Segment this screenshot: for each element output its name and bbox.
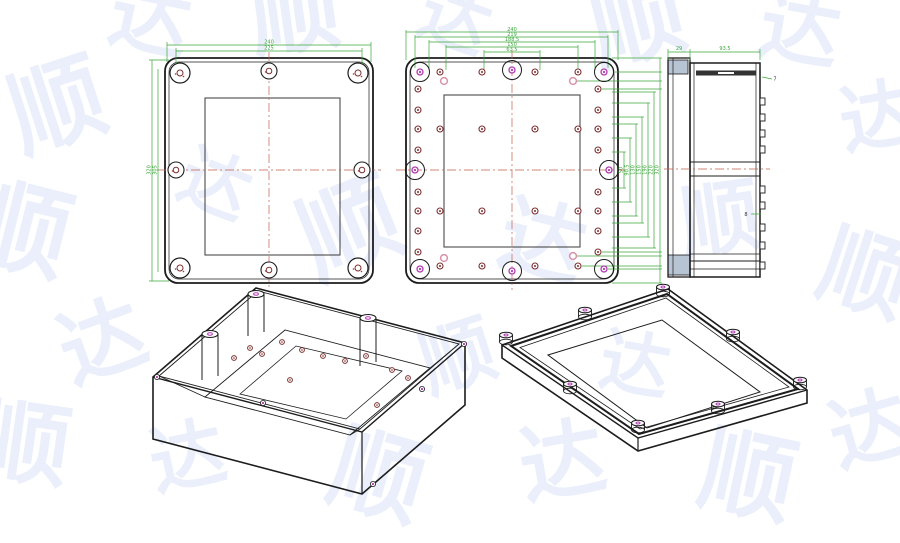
screw-hole-center — [577, 71, 579, 73]
pink-hole — [441, 255, 448, 262]
pink-hole — [570, 78, 577, 85]
lug-hole — [568, 383, 572, 385]
side-flange — [668, 58, 690, 277]
mark-dot — [172, 170, 173, 171]
mark-dot — [183, 271, 185, 273]
mark-dot — [353, 73, 355, 75]
lid-plate-gap — [718, 72, 734, 74]
iso-lid-near-edges — [502, 345, 807, 438]
floor-hole-center — [261, 353, 263, 355]
snap-clip — [760, 98, 765, 105]
iso-wall-edge — [430, 344, 459, 368]
screw-hole — [355, 70, 361, 76]
snap-clip — [760, 242, 765, 249]
corner-posts — [202, 291, 376, 381]
pink-hole — [441, 78, 448, 85]
mark-dot — [361, 271, 363, 273]
screw-hole-center — [417, 88, 419, 90]
snap-clip — [760, 130, 765, 137]
screw-hole-center — [597, 128, 599, 130]
lug-hole — [798, 379, 802, 381]
dim-label: 225 — [264, 45, 274, 51]
drawing-svg: 240 225 320 305 240 219 188.5 150 63.5 5… — [0, 0, 900, 500]
floor-hole-center — [376, 404, 378, 406]
view-iso-base — [153, 288, 467, 494]
screw-hole-center — [597, 191, 599, 193]
screw-points — [154, 341, 466, 486]
floor-hole-center — [281, 341, 283, 343]
floor-hole-center — [407, 377, 409, 379]
screw-hole-center — [597, 230, 599, 232]
pink-hole — [570, 253, 577, 260]
post-hole — [366, 317, 371, 319]
rim-lug-hole — [421, 388, 423, 390]
screw-hole-center — [481, 210, 483, 212]
screw-hole-center — [534, 71, 536, 73]
mark-dot — [361, 76, 363, 78]
screw-hole-center — [439, 71, 441, 73]
post-hole — [208, 333, 213, 335]
floor-hole-center — [289, 379, 291, 381]
screw-hole-center — [417, 128, 419, 130]
rim-lug-hole — [463, 343, 465, 345]
floor-hole-center — [391, 369, 393, 371]
screw-hole-center — [481, 71, 483, 73]
snap-clip — [760, 114, 765, 121]
cad-drawing-page: { "watermark": { "chars": ["顺", "达"], "c… — [0, 0, 900, 500]
screw-hole-center — [577, 265, 579, 267]
view-side: 29 93.5 7 8 — [664, 46, 777, 277]
mark-dot — [175, 73, 177, 75]
dim-label: 29 — [676, 46, 682, 52]
view-base-top: 240 219 188.5 150 63.5 50 90.5 130 150 1… — [396, 27, 662, 290]
magenta-hole-center — [414, 169, 416, 171]
dim-label: 7 — [773, 77, 776, 83]
snap-clip — [760, 186, 765, 193]
snap-clip — [760, 224, 765, 231]
screw-hole-center — [439, 265, 441, 267]
screw-hole-center — [597, 210, 599, 212]
iso-base-silhouette — [153, 288, 465, 494]
screw-hole — [355, 265, 361, 271]
dim-label: 320 — [655, 165, 661, 175]
section-fill-bottom — [668, 255, 690, 275]
screw-hole — [173, 167, 179, 173]
post-hole — [254, 293, 259, 295]
screw-hole-center — [481, 128, 483, 130]
mark-dot — [358, 170, 359, 171]
screw-hole-center — [417, 210, 419, 212]
lug-hole — [636, 422, 640, 424]
screw-hole — [359, 167, 365, 173]
screw-hole-center — [417, 149, 419, 151]
dim-leader — [762, 77, 772, 79]
lid-recess-rect — [205, 98, 340, 255]
floor-hole-center — [344, 360, 346, 362]
lug-hole — [583, 309, 587, 311]
rim-lug-hole — [372, 483, 374, 485]
mark-dot — [175, 268, 177, 270]
lug-hole — [504, 334, 508, 336]
magenta-hole-center — [603, 71, 605, 73]
magenta-hole-center — [511, 69, 513, 71]
view-iso-lid — [500, 284, 808, 451]
snap-clip — [760, 202, 765, 209]
floor-hole-center — [322, 355, 324, 357]
screw-hole-center — [417, 109, 419, 111]
iso-lid-groove-outer — [511, 294, 798, 434]
view-lid-top: 240 225 320 305 — [147, 39, 382, 289]
lug-hole — [661, 286, 665, 288]
lid-lugs — [500, 284, 807, 433]
mark-dot — [183, 76, 185, 78]
screw-hole — [266, 267, 272, 273]
iso-base-rim-near-edges — [153, 343, 465, 432]
magenta-hole-center — [419, 71, 421, 73]
snap-clip — [760, 262, 765, 269]
dim-label: 93.5 — [719, 46, 730, 52]
screw-hole-center — [534, 210, 536, 212]
screw-hole-center — [597, 109, 599, 111]
floor-holes — [232, 340, 411, 408]
screw-hole-center — [417, 251, 419, 253]
mark-dot — [265, 270, 266, 271]
screw-hole — [266, 68, 272, 74]
dim-label: 305 — [153, 165, 159, 175]
screw-hole-center — [417, 230, 419, 232]
rim-lug-hole — [156, 376, 158, 378]
lug-hole — [716, 403, 720, 405]
floor-hole-center — [233, 357, 235, 359]
dim-label: 63.5 — [506, 47, 517, 53]
screw-hole-center — [577, 210, 579, 212]
lug-hole — [731, 331, 735, 333]
mark-dot — [265, 71, 266, 72]
side-body — [690, 63, 760, 277]
iso-lid-silhouette — [502, 289, 807, 451]
rim-lug-hole — [262, 402, 264, 404]
mark-dot — [353, 268, 355, 270]
floor-hole-center — [365, 355, 367, 357]
screw-hole-center — [597, 88, 599, 90]
screw-hole-center — [417, 191, 419, 193]
floor-hole-center — [301, 349, 303, 351]
floor-hole-center — [249, 347, 251, 349]
screw-hole-center — [597, 149, 599, 151]
screw-hole-center — [534, 265, 536, 267]
iso-base-rim-inner — [159, 291, 459, 429]
section-fill-top — [668, 60, 688, 74]
screw-hole-center — [481, 265, 483, 267]
dim-label: 8 — [744, 212, 747, 218]
screw-hole-center — [534, 128, 536, 130]
screw-hole-center — [439, 128, 441, 130]
screw-hole — [177, 70, 183, 76]
screw-hole-center — [439, 210, 441, 212]
snap-clip — [760, 146, 765, 153]
iso-base-floor — [205, 330, 430, 435]
screw-hole-center — [597, 251, 599, 253]
magenta-hole-center — [511, 270, 513, 272]
magenta-hole-center — [419, 268, 421, 270]
magenta-hole-center — [608, 169, 610, 171]
screw-hole-center — [577, 128, 579, 130]
magenta-hole-center — [603, 268, 605, 270]
screw-hole — [177, 265, 183, 271]
